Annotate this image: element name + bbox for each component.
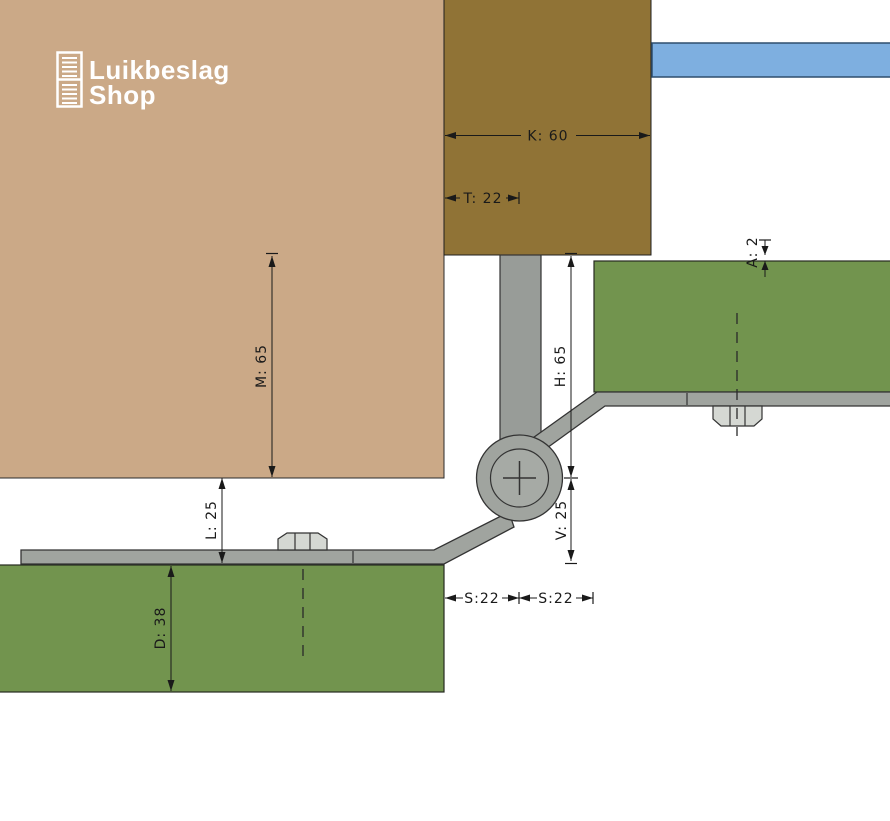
- dimension-T-label: T: 22: [463, 191, 503, 207]
- hinge-knuckle: [477, 435, 563, 521]
- dimension-D-label: D: 38: [153, 607, 169, 650]
- bolt-hex-outline: [278, 533, 327, 550]
- dimension-S1-label: S:22: [464, 591, 499, 607]
- dimension-S1: S:22: [445, 591, 519, 607]
- logo-brand-line2: Shop: [89, 80, 156, 110]
- dimension-S2-label: S:22: [538, 591, 573, 607]
- dimension-H: H: 65: [553, 254, 578, 479]
- shutter-left: [0, 565, 444, 692]
- dimension-V-label: V: 25: [554, 500, 570, 540]
- hinge-vertical-strap: [500, 255, 541, 450]
- dimension-S2: S:22: [519, 591, 593, 607]
- hinge-cross-section-diagram: K: 60 T: 22 M: 65 H: 65 V: 25: [0, 0, 890, 821]
- shutter-right: [594, 261, 890, 392]
- dimension-H-label: H: 65: [553, 345, 569, 388]
- frame-section: [444, 0, 651, 255]
- lintel-bar: [652, 43, 890, 77]
- dimension-A-label: A: 2: [745, 236, 761, 267]
- hinge-strap-right: [530, 392, 890, 453]
- hinge-strap-bottom: [21, 512, 514, 564]
- dimension-L-label: L: 25: [204, 500, 220, 540]
- dimension-M-label: M: 65: [254, 344, 270, 388]
- dimension-K-label: K: 60: [527, 129, 568, 145]
- bolt-head-bottom: [278, 533, 327, 550]
